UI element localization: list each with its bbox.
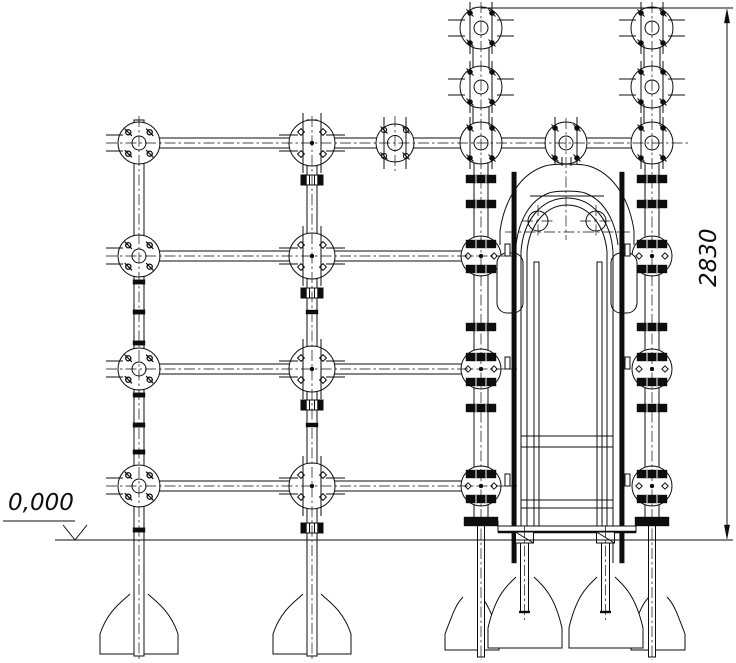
elevation-drawing-canvas: 2830 0,000 <box>0 0 736 663</box>
level-value-label: 0,000 <box>8 490 74 516</box>
support-columns <box>134 8 660 657</box>
apparatus-assembly <box>497 157 637 612</box>
technical-drawing: 2830 0,000 <box>0 0 736 663</box>
dimension-value-label: 2830 <box>696 228 722 287</box>
foundation-bells <box>100 577 685 654</box>
level-marker: 0,000 <box>3 490 87 540</box>
